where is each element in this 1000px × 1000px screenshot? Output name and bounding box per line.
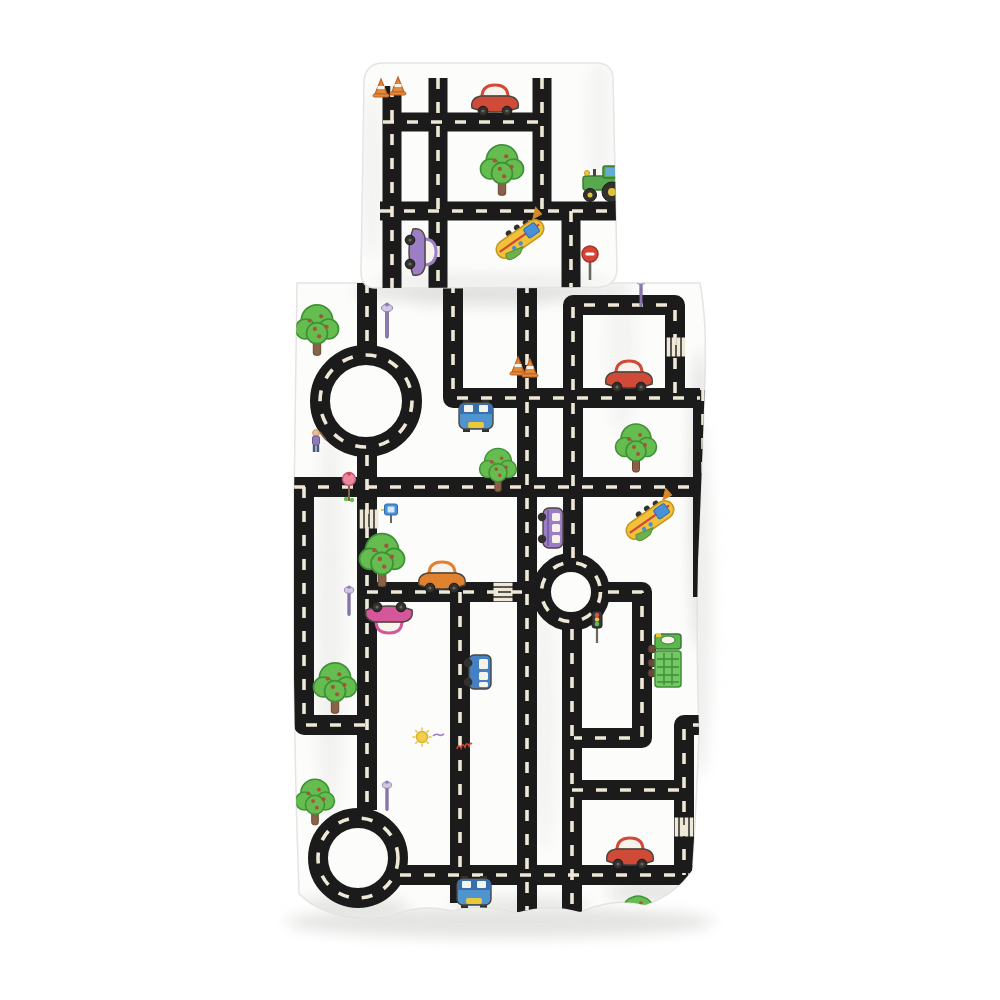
crosswalk-stripe xyxy=(675,818,679,837)
crosswalk-stripe xyxy=(360,510,364,529)
bedding-product-photo xyxy=(0,0,1000,1000)
crosswalk-stripe xyxy=(375,510,379,529)
crosswalk-stripe xyxy=(685,818,689,837)
crosswalk-stripe xyxy=(494,598,513,602)
road-print-illustration xyxy=(0,0,1000,1000)
crosswalk-stripe xyxy=(370,510,374,529)
crosswalk-stripe xyxy=(494,583,513,587)
product-photo-page xyxy=(0,0,1000,1000)
crosswalk-stripe xyxy=(680,818,684,837)
topcar xyxy=(457,876,491,908)
pillowcase xyxy=(361,55,622,290)
crosswalk-stripe xyxy=(365,510,369,529)
crosswalk-stripe xyxy=(494,593,513,597)
duvet-cover xyxy=(290,265,709,923)
crosswalk-stripe xyxy=(682,338,686,357)
crosswalk-stripe xyxy=(494,588,513,592)
crosswalk-stripe xyxy=(672,338,676,357)
topcar xyxy=(459,400,493,432)
fabric-crease xyxy=(535,590,555,850)
fabric-crease xyxy=(361,90,383,260)
crosswalk-stripe xyxy=(690,818,694,837)
crosswalk-stripe xyxy=(667,338,671,357)
crosswalk-stripe xyxy=(677,338,681,357)
